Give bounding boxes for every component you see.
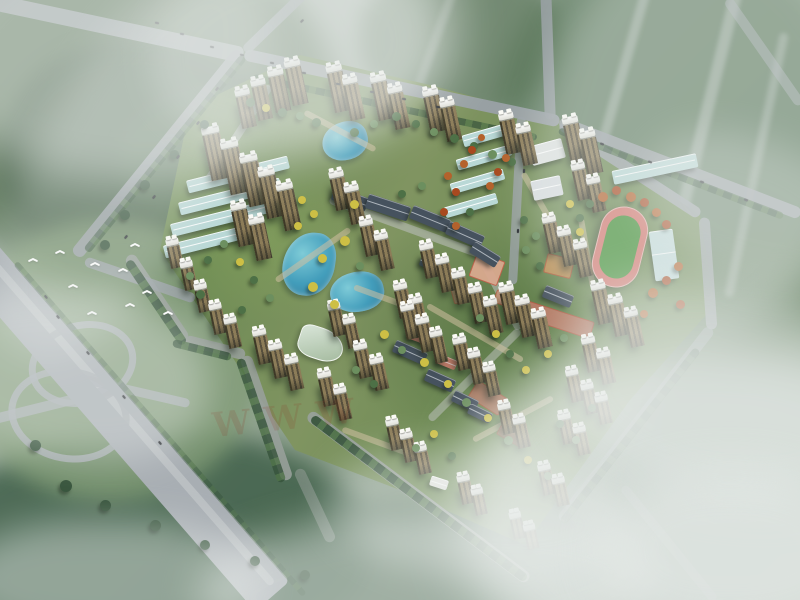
- tree: [330, 300, 339, 309]
- tree: [430, 430, 438, 438]
- tree: [476, 314, 484, 322]
- tree: [412, 120, 420, 128]
- tree: [310, 210, 318, 218]
- tree: [506, 350, 514, 358]
- tree: [488, 150, 497, 159]
- tree: [486, 182, 494, 190]
- tree: [420, 358, 429, 367]
- tree: [398, 190, 406, 198]
- tree: [266, 294, 274, 302]
- tree: [340, 236, 350, 246]
- tree: [460, 160, 468, 168]
- tree: [196, 290, 205, 299]
- tree: [468, 146, 476, 154]
- tree: [204, 256, 212, 264]
- tree: [450, 134, 459, 143]
- tree: [462, 398, 471, 407]
- tree: [298, 196, 306, 204]
- tree: [220, 240, 228, 248]
- tree: [452, 222, 460, 230]
- tree: [418, 182, 426, 190]
- tree: [370, 380, 378, 388]
- tree: [308, 282, 318, 292]
- tree: [522, 366, 530, 374]
- tree: [398, 346, 406, 354]
- tree: [544, 350, 552, 358]
- tree: [236, 258, 244, 266]
- aerial-masterplan-rendering: WWW: [0, 0, 800, 600]
- tree: [356, 262, 364, 270]
- tree: [492, 330, 500, 338]
- tree: [352, 366, 360, 374]
- tree: [380, 330, 389, 339]
- tree: [350, 200, 359, 209]
- tree: [502, 154, 510, 162]
- tree: [536, 262, 544, 270]
- tree: [294, 222, 302, 230]
- tree: [444, 380, 452, 388]
- car: [517, 229, 519, 233]
- tree: [520, 216, 528, 224]
- tree: [466, 208, 474, 216]
- tree: [60, 480, 72, 492]
- tree: [238, 306, 246, 314]
- tree: [250, 276, 258, 284]
- bird-wing: [167, 311, 173, 315]
- tree: [186, 272, 194, 280]
- tree: [522, 246, 530, 254]
- tree: [318, 254, 327, 263]
- car: [523, 169, 525, 173]
- tree: [430, 128, 438, 136]
- tree: [478, 134, 485, 141]
- tree: [440, 208, 448, 216]
- tree: [494, 168, 502, 176]
- tree: [100, 500, 111, 511]
- tree: [444, 172, 452, 180]
- tree: [452, 188, 460, 196]
